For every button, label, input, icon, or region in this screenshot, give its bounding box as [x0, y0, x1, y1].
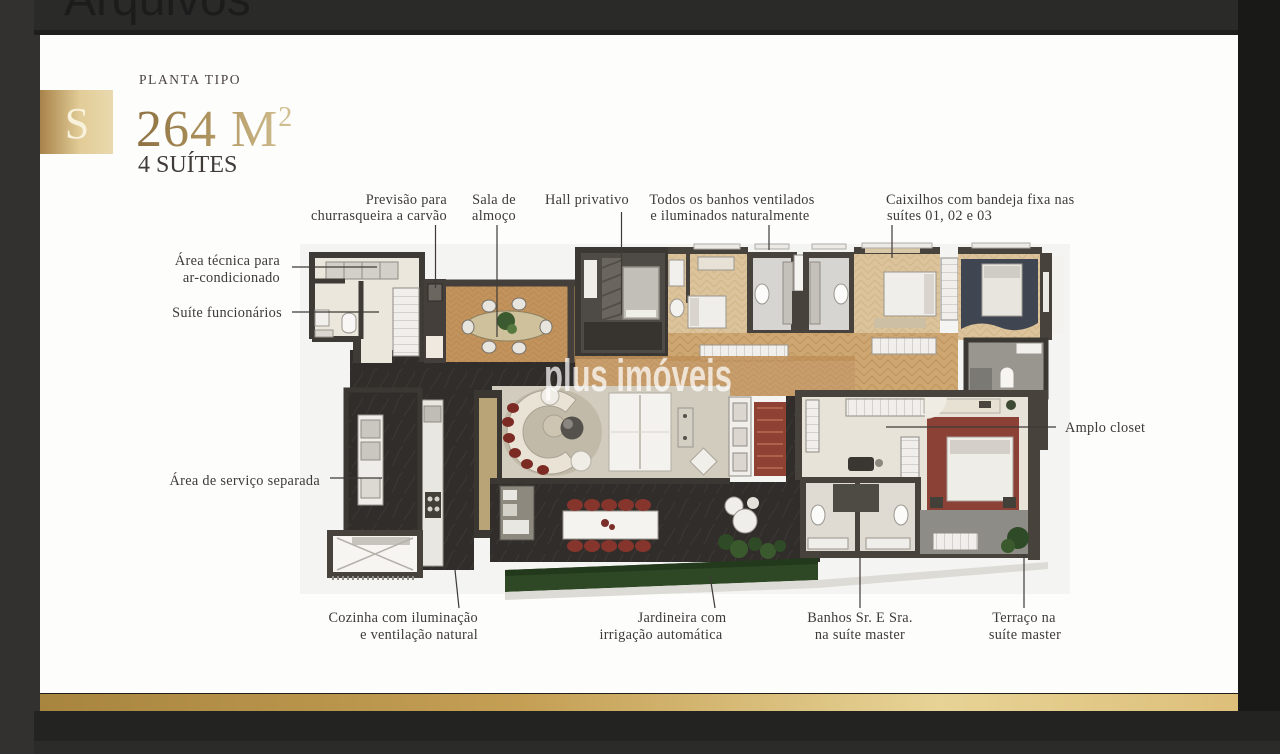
svg-text:na suíte master: na suíte master: [815, 627, 905, 643]
svg-text:Suíte funcionários: Suíte funcionários: [172, 305, 282, 321]
svg-text:264 M2: 264 M2: [136, 101, 293, 158]
svg-text:e iluminados naturalmente: e iluminados naturalmente: [650, 208, 809, 224]
svg-text:Cozinha com iluminação: Cozinha com iluminação: [328, 610, 478, 626]
svg-text:churrasqueira a carvão: churrasqueira a carvão: [311, 208, 447, 224]
svg-text:Jardineira com: Jardineira com: [638, 610, 727, 626]
svg-text:Previsão para: Previsão para: [366, 192, 448, 208]
svg-text:e ventilação natural: e ventilação natural: [360, 627, 478, 643]
svg-text:Hall privativo: Hall privativo: [545, 192, 629, 208]
svg-text:Caixilhos com bandeja fixa nas: Caixilhos com bandeja fixa nas: [886, 192, 1075, 208]
svg-text:almoço: almoço: [472, 208, 516, 224]
svg-text:Área técnica para: Área técnica para: [175, 252, 280, 269]
svg-text:4 SUÍTES: 4 SUÍTES: [138, 152, 237, 178]
svg-text:S: S: [65, 99, 89, 148]
svg-text:Terraço na: Terraço na: [992, 610, 1056, 626]
svg-text:Todos os banhos ventilados: Todos os banhos ventilados: [649, 192, 814, 208]
svg-text:suítes 01, 02 e 03: suítes 01, 02 e 03: [887, 208, 992, 224]
svg-text:Área de serviço separada: Área de serviço separada: [170, 472, 321, 489]
svg-text:Arquivos: Arquivos: [64, 0, 251, 26]
svg-text:ar-condicionado: ar-condicionado: [183, 270, 280, 286]
svg-text:suíte master: suíte master: [989, 627, 1061, 643]
svg-text:PLANTA TIPO: PLANTA TIPO: [139, 72, 241, 87]
svg-text:plus imóveis: plus imóveis: [544, 350, 732, 401]
svg-text:Banhos Sr. E Sra.: Banhos Sr. E Sra.: [807, 610, 913, 626]
svg-text:Sala de: Sala de: [472, 192, 516, 208]
svg-text:irrigação automática: irrigação automática: [599, 627, 722, 643]
svg-text:Amplo closet: Amplo closet: [1065, 420, 1145, 436]
